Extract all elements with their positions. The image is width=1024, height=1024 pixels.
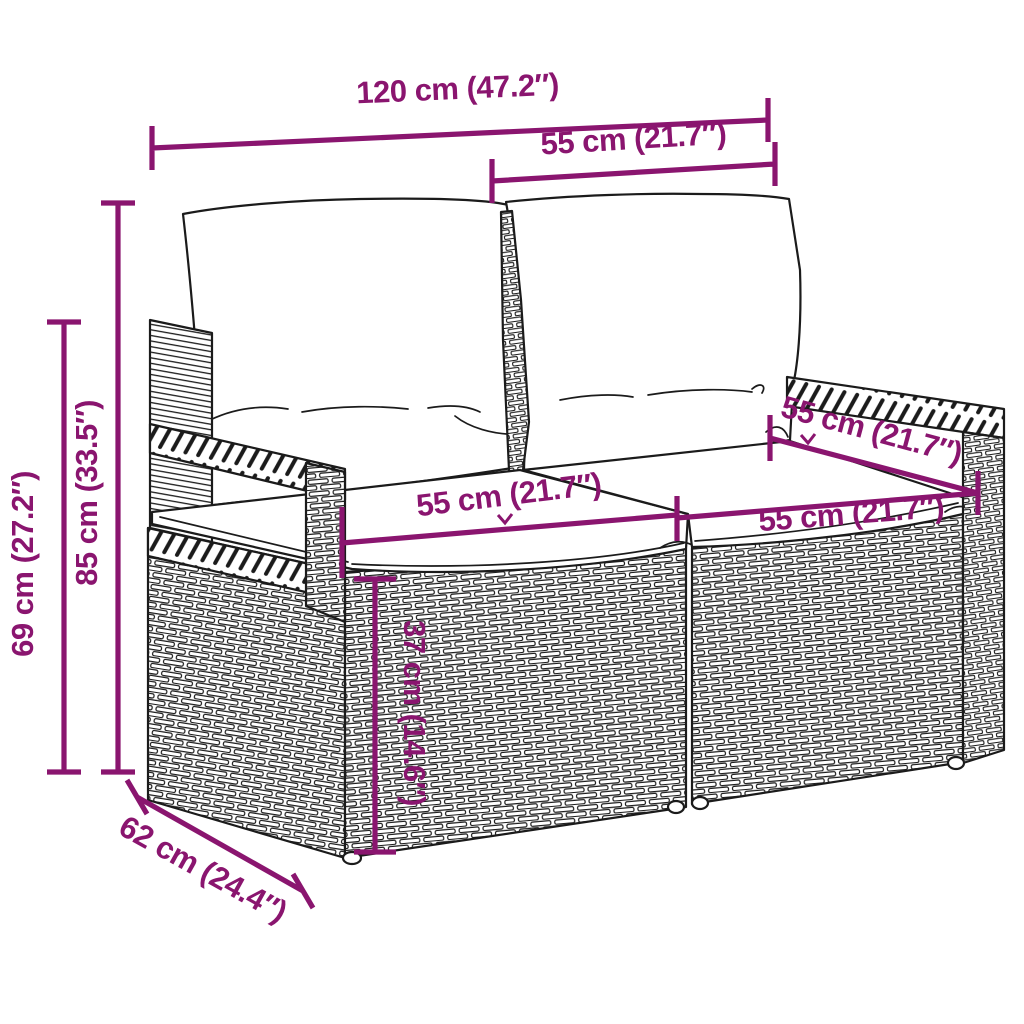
back-cushion-right	[506, 194, 800, 470]
dimension-label-back-cushion-width: 55 cm (21.7″)	[540, 115, 728, 161]
sofa-dimension-drawing: 120 cm (47.2″) 55 cm (21.7″) 85 cm (33.5…	[0, 0, 1024, 1024]
dimension-diagram: 120 cm (47.2″) 55 cm (21.7″) 85 cm (33.5…	[0, 0, 1024, 1024]
left-armrest-front-post	[306, 463, 345, 622]
dimension-label-armrest-height: 69 cm (27.2″)	[5, 471, 40, 657]
base-front-left-module	[345, 549, 686, 858]
base-front-right-module	[692, 507, 963, 804]
dimension-label-total-width: 120 cm (47.2″)	[356, 67, 560, 111]
dimension-label-overall-height: 85 cm (33.5″)	[69, 400, 104, 586]
dimension-label-seat-height: 37 cm (14.6″)	[397, 620, 432, 806]
right-armrest-post	[963, 432, 1004, 763]
dimension-overall-height: 85 cm (33.5″)	[69, 203, 135, 772]
